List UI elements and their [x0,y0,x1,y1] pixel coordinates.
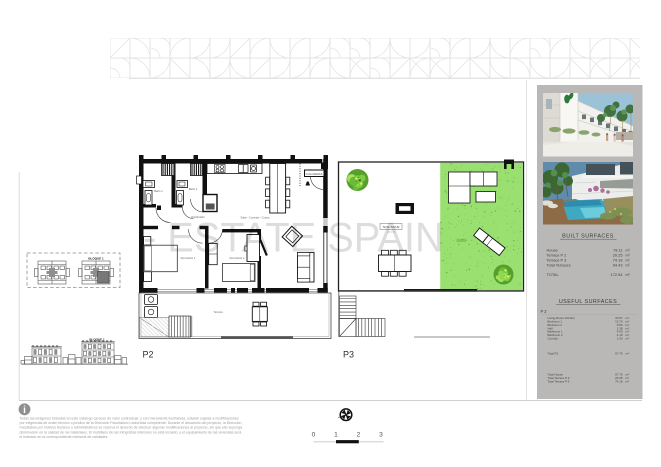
svg-text:CALDERA: CALDERA [306,172,323,176]
svg-text:Total P2: Total P2 [548,351,559,355]
svg-text:TOTAL: TOTAL [547,272,560,277]
svg-text:Total Terrace P 3: Total Terrace P 3 [548,379,570,383]
svg-text:por exigencias de orden técni: por exigencias de orden técnico o jurídi… [20,421,242,425]
svg-text:i: i [23,405,26,416]
svg-text:BLOQUE 1: BLOQUE 1 [88,257,104,261]
svg-text:- ESTATE SPAIN -: - ESTATE SPAIN - [143,214,468,261]
svg-text:USEFUL SURFACES: USEFUL SURFACES [559,299,617,305]
svg-text:m²: m² [626,379,630,383]
svg-text:BUILT SURFACES: BUILT SURFACES [562,234,614,240]
svg-text:1.50: 1.50 [617,336,623,340]
svg-text:74.18: 74.18 [615,379,623,383]
svg-text:Total Terraces: Total Terraces [547,262,571,267]
svg-text:172.54: 172.54 [611,272,624,277]
svg-text:m²: m² [626,336,630,340]
svg-text:disminución en la calidad de: disminución en la calidad de los materia… [20,430,242,434]
svg-text:P 2: P 2 [541,309,548,314]
svg-text:3: 3 [379,431,383,438]
svg-text:67.75: 67.75 [615,351,623,355]
svg-text:m²: m² [626,351,630,355]
svg-text:1: 1 [334,431,338,438]
svg-text:BLOQUE 1: BLOQUE 1 [89,338,105,342]
svg-text:Terraza: Terraza [214,310,223,314]
svg-text:Todas las imágenes incluidas e: Todas las imágenes incluidas en este cat… [20,417,239,421]
svg-text:P3: P3 [343,350,354,360]
svg-text:0: 0 [312,431,316,438]
svg-text:Baño 2: Baño 2 [189,187,198,191]
svg-text:2: 2 [357,431,361,438]
svg-text:el indicado en la correspondie: el indicado en la correspondiente memori… [20,435,109,439]
svg-text:94.43: 94.43 [613,262,623,267]
svg-text:P2: P2 [143,350,154,360]
svg-text:Corridor: Corridor [548,336,559,340]
svg-text:Baño 1: Baño 1 [154,189,163,193]
svg-text:Facultativa por motivos técnic: Facultativa por motivos técnicos o admin… [20,426,243,430]
